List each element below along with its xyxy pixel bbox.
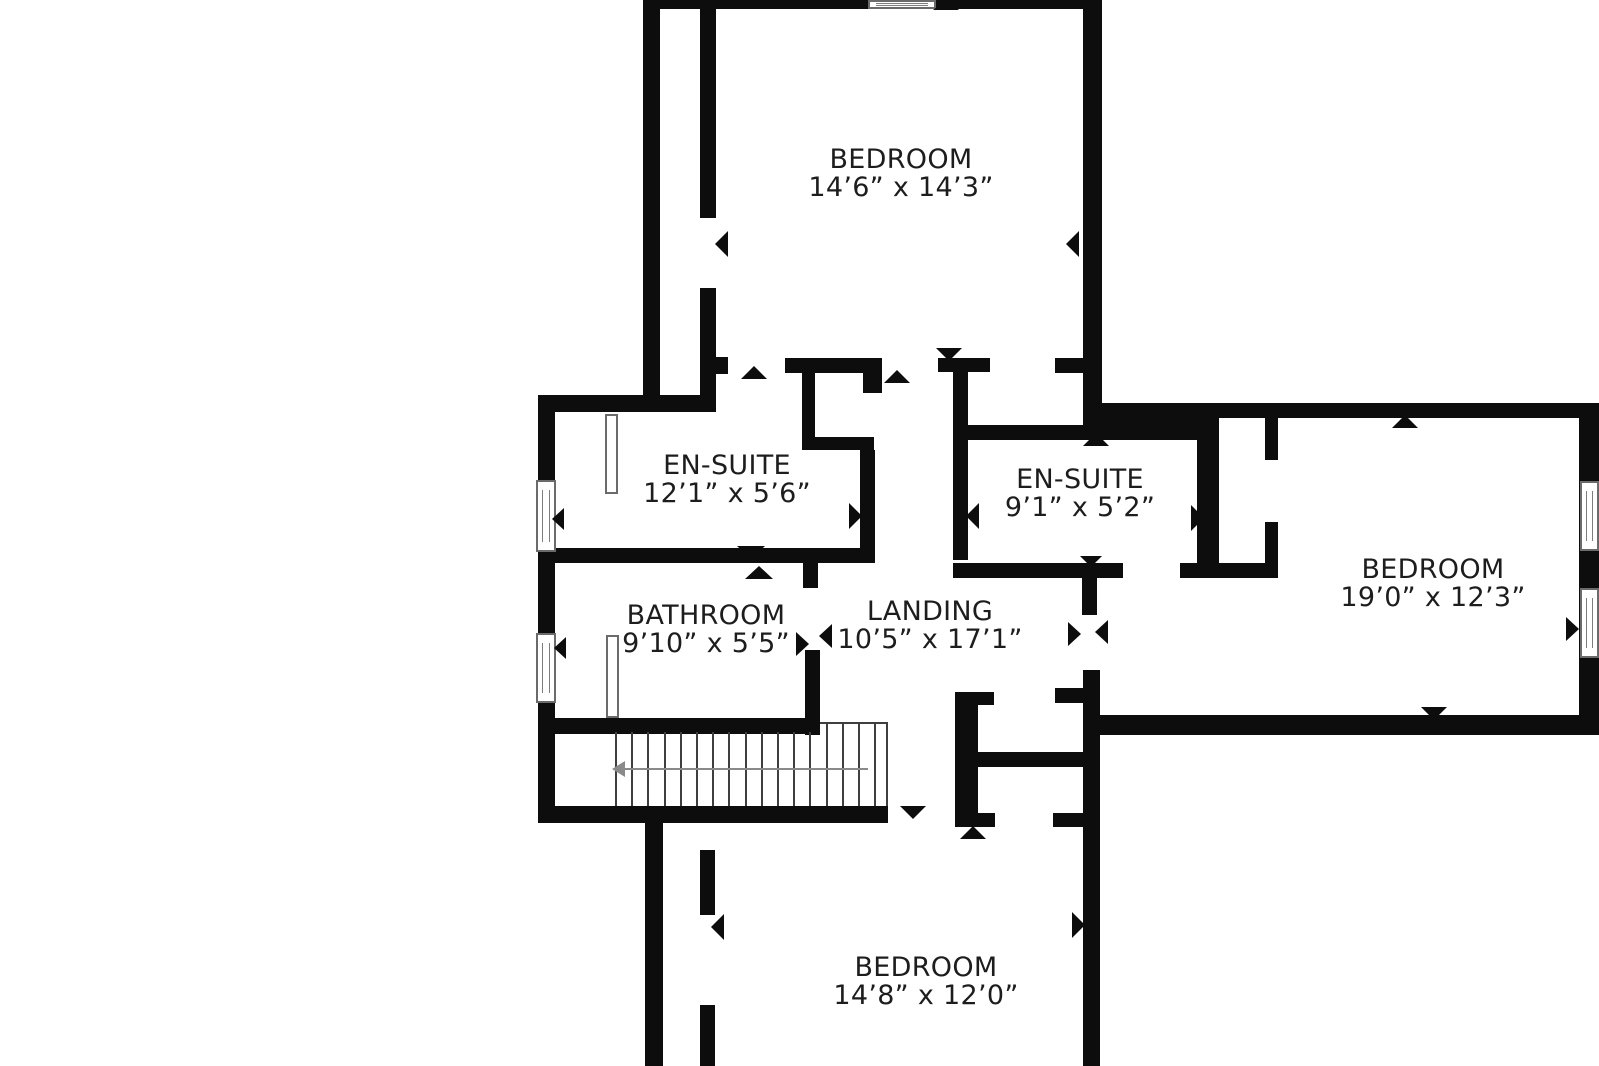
door-marker-icon bbox=[1191, 505, 1204, 531]
room-name: EN-SUITE bbox=[643, 452, 811, 480]
door-marker-icon bbox=[960, 826, 986, 839]
door-marker-icon bbox=[936, 348, 962, 361]
window bbox=[536, 633, 556, 703]
window bbox=[1580, 481, 1599, 551]
door-marker-icon bbox=[741, 366, 767, 379]
wall-segment bbox=[955, 752, 1097, 767]
wall-segment bbox=[955, 813, 995, 827]
stair-arrow-head-icon bbox=[612, 761, 625, 777]
room-name: EN-SUITE bbox=[1005, 466, 1155, 494]
room-dimensions: 9’10” x 5’5” bbox=[622, 630, 790, 658]
door-marker-icon bbox=[1421, 707, 1447, 720]
wall-segment bbox=[713, 357, 728, 374]
door-marker-icon bbox=[819, 624, 832, 648]
wall-segment bbox=[538, 412, 555, 822]
room-name: LANDING bbox=[837, 598, 1022, 626]
room-label-landing: LANDING 10’5” x 17’1” bbox=[837, 598, 1022, 654]
room-label-bathroom: BATHROOM 9’10” x 5’5” bbox=[622, 602, 790, 658]
stair-boundary-line bbox=[886, 722, 888, 806]
room-label-bedroom-bottom: BEDROOM 14’8” x 12’0” bbox=[833, 954, 1018, 1010]
room-name: BEDROOM bbox=[808, 146, 993, 174]
room-name: BATHROOM bbox=[622, 602, 790, 630]
room-dimensions: 9’1” x 5’2” bbox=[1005, 494, 1155, 522]
wall-segment bbox=[1197, 417, 1219, 563]
room-label-bedroom-right: BEDROOM 19’0” x 12’3” bbox=[1340, 556, 1525, 612]
wall-segment bbox=[1083, 0, 1102, 433]
wall-segment bbox=[1055, 358, 1083, 373]
wall-segment bbox=[700, 0, 716, 218]
room-label-ensuite-left: EN-SUITE 12’1” x 5’6” bbox=[643, 452, 811, 508]
wall-segment bbox=[803, 563, 818, 588]
wall-segment bbox=[860, 450, 875, 563]
wall-segment bbox=[643, 0, 660, 412]
room-dimensions: 12’1” x 5’6” bbox=[643, 480, 811, 508]
wall-segment bbox=[538, 806, 888, 823]
door-marker-icon bbox=[1392, 415, 1418, 428]
door-marker-icon bbox=[900, 806, 926, 819]
wall-segment bbox=[1265, 522, 1278, 563]
room-name: BEDROOM bbox=[833, 954, 1018, 982]
window bbox=[868, 0, 936, 9]
stair-tread bbox=[842, 722, 844, 806]
wall-segment bbox=[538, 548, 875, 563]
wall-segment bbox=[785, 358, 882, 373]
wall-segment bbox=[1180, 563, 1278, 578]
door-marker-icon bbox=[1083, 433, 1109, 446]
door-marker-icon bbox=[1566, 617, 1579, 641]
door-marker-icon bbox=[745, 566, 773, 579]
room-label-bedroom-top: BEDROOM 14’6” x 14’3” bbox=[808, 146, 993, 202]
wall-segment bbox=[978, 692, 994, 705]
door-marker-icon bbox=[1072, 912, 1085, 938]
wall-segment bbox=[700, 1005, 715, 1066]
stair-tread bbox=[858, 722, 860, 806]
window-glazing bbox=[1586, 598, 1593, 648]
window-glazing bbox=[542, 490, 550, 542]
wall-segment bbox=[1088, 715, 1599, 735]
window-glazing bbox=[1586, 491, 1593, 541]
room-name: BEDROOM bbox=[1340, 556, 1525, 584]
door-marker-icon bbox=[552, 508, 564, 530]
wall-segment bbox=[643, 0, 870, 9]
door-marker-icon bbox=[711, 914, 724, 940]
wall-segment bbox=[1053, 813, 1083, 827]
wall-segment bbox=[645, 808, 663, 1066]
wall-segment bbox=[863, 373, 882, 393]
door-marker-icon bbox=[884, 370, 910, 383]
room-label-ensuite-right: EN-SUITE 9’1” x 5’2” bbox=[1005, 466, 1155, 522]
door-marker-icon bbox=[1068, 622, 1081, 646]
room-dimensions: 14’6” x 14’3” bbox=[808, 174, 993, 202]
stair-boundary-line bbox=[820, 722, 888, 724]
room-dimensions: 19’0” x 12’3” bbox=[1340, 584, 1525, 612]
door-marker-icon bbox=[933, 0, 959, 10]
door-marker-icon bbox=[1095, 620, 1108, 644]
window-glazing bbox=[876, 3, 927, 6]
wall-segment bbox=[700, 288, 716, 412]
room-dimensions: 14’8” x 12’0” bbox=[833, 982, 1018, 1010]
window bbox=[1580, 588, 1599, 658]
wall-segment bbox=[538, 395, 716, 412]
door-marker-icon bbox=[849, 503, 862, 529]
stair-direction-arrow-icon bbox=[625, 768, 868, 770]
stair-tread bbox=[826, 722, 828, 806]
door-marker-icon bbox=[966, 503, 979, 529]
radiator bbox=[605, 414, 618, 494]
wall-segment bbox=[1082, 578, 1097, 615]
door-marker-icon bbox=[554, 637, 566, 659]
wall-segment bbox=[953, 370, 968, 560]
wall-segment bbox=[1055, 688, 1083, 703]
room-dimensions: 10’5” x 17’1” bbox=[837, 626, 1022, 654]
wall-segment bbox=[802, 437, 874, 450]
door-marker-icon bbox=[1066, 231, 1079, 257]
door-marker-icon bbox=[796, 632, 809, 656]
stair-tread bbox=[874, 722, 876, 806]
door-marker-icon bbox=[737, 546, 765, 559]
wall-segment bbox=[700, 850, 715, 915]
door-marker-icon bbox=[1080, 556, 1102, 567]
floor-plan: BEDROOM 14’6” x 14’3” EN-SUITE 12’1” x 5… bbox=[0, 0, 1599, 1066]
door-marker-icon bbox=[715, 231, 728, 257]
wall-segment bbox=[1265, 417, 1278, 460]
radiator bbox=[606, 635, 619, 718]
wall-segment bbox=[1579, 403, 1599, 733]
window-glazing bbox=[542, 643, 550, 693]
